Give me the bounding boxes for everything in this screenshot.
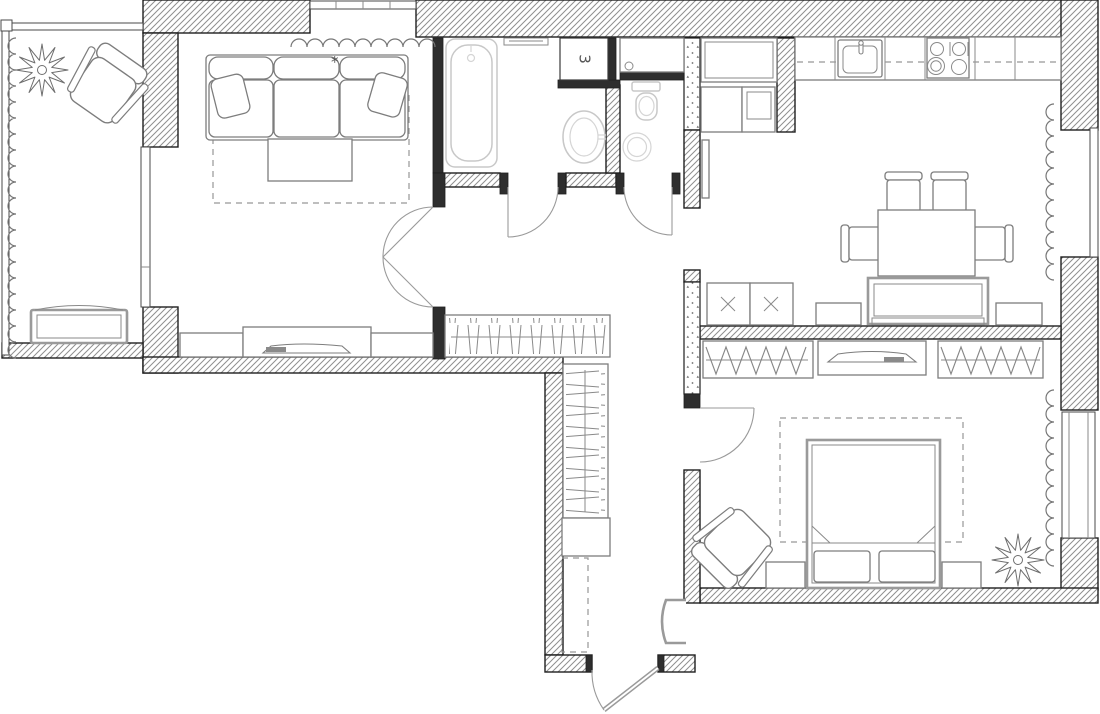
jamb: [558, 173, 566, 194]
cabinet-x: [707, 283, 750, 325]
balcony-armchair-icon: [59, 36, 157, 132]
entrance-door: [592, 668, 658, 710]
wall-bathroom-bottom-1: [443, 173, 500, 187]
dining-chair: [885, 172, 922, 212]
washbasin-icon: [563, 111, 606, 163]
double-bed: [807, 440, 940, 588]
nightstand-right: [942, 562, 981, 588]
wall-column-speckled-bottom: [684, 282, 700, 394]
living-room-double-door: [383, 207, 433, 307]
balcony-glazing-top: [2, 23, 143, 30]
wall-bedroom-bottom: [700, 588, 1098, 603]
kitchen-side-cabinet: [996, 303, 1042, 325]
sofa-marker: *: [331, 53, 339, 71]
bedroom: [683, 341, 1044, 597]
coffee-table: [268, 139, 352, 181]
wardrobe-right: [938, 341, 1043, 378]
washing-machine-icon: [623, 133, 651, 161]
wall-wc-shelf-front: [620, 72, 684, 80]
hall-shelf-unit: [562, 518, 610, 556]
wall-hall-left: [545, 373, 563, 655]
balcony-bench: [31, 306, 127, 344]
jamb: [616, 173, 624, 194]
bathroom-door: [508, 187, 558, 237]
wall-stub: [684, 270, 700, 282]
wall-right-bottom: [1061, 538, 1098, 590]
floor-plan-canvas: * 3: [0, 0, 1100, 714]
wall-top-left: [143, 0, 310, 33]
wall-livingroom-bottom: [143, 357, 563, 373]
curtain-bedroom: [1046, 390, 1054, 566]
wall-bathroom-bottom-2: [566, 173, 616, 187]
kitchen-window: [1090, 128, 1098, 257]
hob-icon: [927, 38, 969, 78]
bathtub-icon: [446, 39, 497, 167]
dresser: [818, 341, 926, 375]
dining-table: [878, 210, 975, 276]
sink-icon: [838, 40, 882, 77]
wall-right-top: [1061, 0, 1098, 130]
balcony-corner-post: [1, 20, 12, 31]
fridge-cabinet: [701, 38, 777, 82]
bedroom-door: [700, 408, 754, 462]
wc-door: [624, 187, 672, 235]
kitchen-pocket-door: [702, 140, 709, 198]
wall-bath-wc-divider: [606, 85, 620, 173]
entry-bench: [662, 600, 686, 643]
wall-kitchen-bedroom: [700, 326, 1061, 339]
wall-top-main: [416, 0, 1063, 37]
wall-niche-bottom: [558, 80, 620, 88]
wc-room: [620, 38, 684, 161]
pillow: [879, 551, 935, 582]
hall-closet-horizontal: [445, 315, 610, 357]
living-room: *: [180, 53, 433, 357]
curtain-kitchen: [1046, 104, 1054, 280]
toilet-icon: [632, 82, 660, 120]
dining-chair: [931, 172, 968, 212]
wardrobe-left: [703, 341, 813, 378]
jamb: [586, 655, 592, 672]
wall-bathroom-left: [433, 38, 443, 173]
kitchen: [701, 37, 1061, 325]
wall-balcony-bottom: [2, 343, 143, 358]
kitchen-side-cabinet: [816, 303, 861, 325]
bedroom-plant-icon: [992, 534, 1044, 586]
balcony-door: [141, 147, 150, 307]
jamb: [500, 173, 508, 194]
balcony-plant-icon: [16, 44, 68, 96]
jamb: [672, 173, 680, 194]
base-cabinet: [701, 87, 742, 132]
tv-speaker-grille: [266, 347, 286, 352]
bathroom: 3: [446, 38, 608, 167]
sofa: *: [206, 53, 409, 140]
kitchen-sofa: [868, 278, 988, 325]
tv-console: [180, 327, 433, 357]
wall-balcony-divider-upper: [143, 33, 178, 147]
dining-chair: [973, 225, 1013, 262]
towel-rail-icon: [504, 38, 548, 45]
wall-bedroom-door-jamb: [684, 394, 700, 408]
nightstand-left: [766, 562, 805, 588]
wall-entry-jamb-left: [545, 655, 592, 672]
bedroom-window: [1062, 412, 1095, 538]
cabinet-x: [750, 283, 793, 325]
wall-kitchen-entry-side: [684, 130, 700, 208]
niche-label: 3: [576, 54, 594, 64]
balcony: [16, 36, 156, 343]
wc-shelf: [620, 38, 684, 72]
hall-closet-vertical: [563, 364, 608, 518]
wall-niche-right: [608, 38, 616, 85]
wall-kitchen-divider: [777, 38, 795, 132]
curtain-living-room: [291, 39, 435, 47]
wall-column-speckled-top: [684, 38, 700, 130]
wall-right-pillar: [1061, 257, 1098, 410]
wall-lr-right-lower: [433, 307, 445, 359]
pillow: [814, 551, 870, 582]
wall-lr-right-upper: [433, 173, 445, 207]
dining-set: [841, 172, 1013, 276]
dining-chair: [841, 225, 881, 262]
niche-unit: 3: [560, 38, 608, 80]
hall-mirror-outline: [562, 558, 588, 652]
